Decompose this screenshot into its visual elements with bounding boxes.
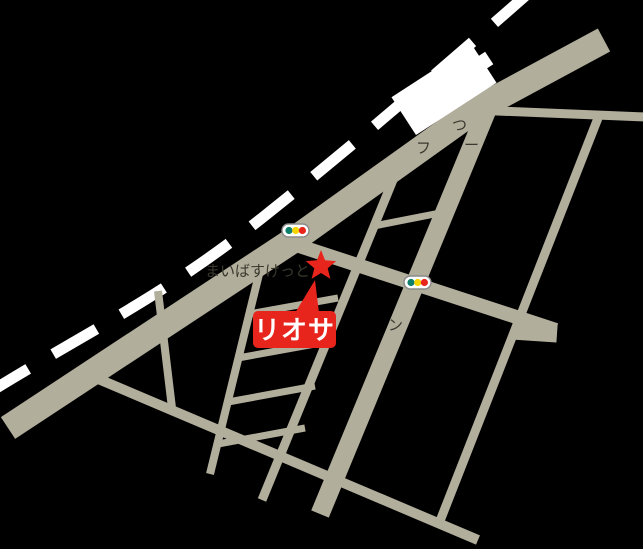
traffic-light-yellow [414, 279, 421, 286]
traffic-light-red [299, 227, 306, 234]
store-name-label: まいばすけっと [205, 262, 310, 280]
obscured-text-fragment: つ [452, 116, 467, 134]
traffic-light-green [285, 227, 292, 234]
traffic-light-green [407, 279, 414, 286]
traffic-light-yellow [292, 227, 299, 234]
access-map: まいばすけっと つ フ ー ン リオサ [0, 0, 643, 549]
destination-callout: リオサ [253, 311, 336, 348]
obscured-text-fragment: フ [416, 139, 431, 157]
obscured-text-fragment: ン [388, 316, 403, 334]
obscured-text-fragment: ー [464, 136, 479, 154]
traffic-light-icon [282, 224, 309, 237]
traffic-light-icon [404, 276, 431, 289]
destination-label: リオサ [254, 316, 335, 346]
traffic-light-red [421, 279, 428, 286]
